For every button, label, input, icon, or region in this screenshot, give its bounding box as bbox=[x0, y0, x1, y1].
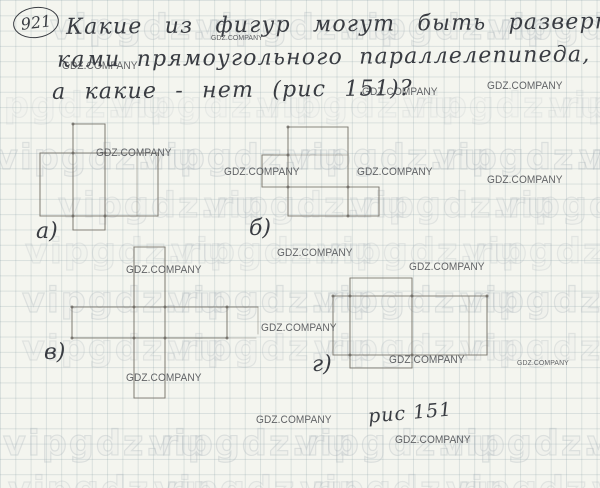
figure-b-label: б) bbox=[249, 216, 271, 241]
brand-tag: GDZ.COMPANY bbox=[96, 147, 172, 159]
brand-tag: GDZ.COMPANY bbox=[409, 261, 485, 273]
brand-tag: GDZ.COMPANY bbox=[224, 166, 300, 178]
brand-tag: GDZ.COMPANY bbox=[517, 358, 569, 367]
brand-tag: GDZ.COMPANY bbox=[389, 354, 465, 366]
figure-v-label: в) bbox=[44, 340, 65, 365]
brand-tag: GDZ.COMPANY bbox=[126, 264, 202, 276]
brand-tag: GDZ.COMPANY bbox=[256, 414, 332, 426]
problem-number: 921 bbox=[20, 11, 53, 34]
brand-tag: GDZ.COMPANY bbox=[261, 322, 337, 334]
brand-tag: GDZ.COMPANY bbox=[487, 80, 563, 92]
figure-a-net bbox=[40, 123, 158, 231]
notebook-page: vipgdz.ruvipgdz.ruvipgdz.ruvipgdz.ruvipg… bbox=[0, 0, 600, 488]
brand-tag: GDZ.COMPANY bbox=[126, 372, 202, 384]
figure-g-label: г) bbox=[312, 352, 332, 377]
figure-a-label: а) bbox=[36, 219, 58, 244]
brand-tag: GDZ.COMPANY bbox=[487, 174, 563, 186]
problem-text-line-3: а какие - нет (рис 151)? bbox=[52, 76, 413, 105]
brand-tag: GDZ.COMPANY bbox=[277, 247, 353, 259]
brand-tag: GDZ.COMPANY bbox=[357, 166, 433, 178]
brand-tag: GDZ.COMPANY bbox=[395, 434, 471, 446]
